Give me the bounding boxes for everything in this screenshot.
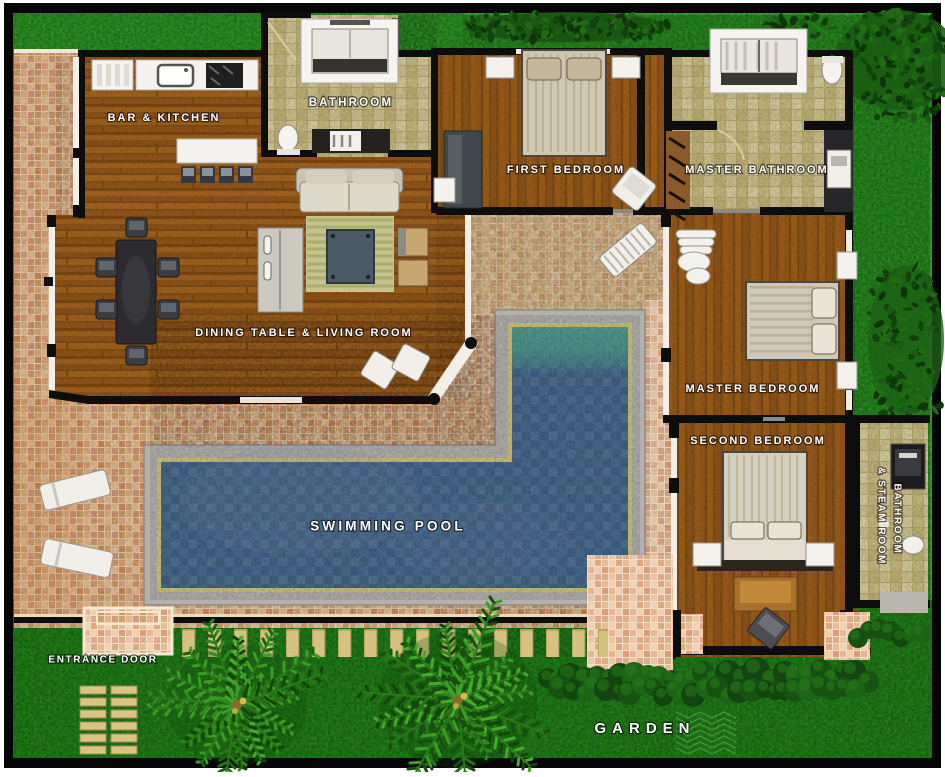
svg-text:BAR & KITCHEN: BAR & KITCHEN bbox=[108, 112, 221, 124]
svg-text:DINING TABLE & LIVING ROOM: DINING TABLE & LIVING ROOM bbox=[195, 327, 412, 339]
svg-text:SECOND BEDROOM: SECOND BEDROOM bbox=[690, 435, 826, 447]
svg-text:BATHROOM: BATHROOM bbox=[891, 484, 902, 555]
svg-text:ENTRANCE DOOR: ENTRANCE DOOR bbox=[48, 655, 157, 666]
svg-text:& STEAM ROOM: & STEAM ROOM bbox=[875, 467, 886, 565]
svg-text:BATHROOM: BATHROOM bbox=[309, 97, 393, 109]
svg-text:MASTER BATHROOM: MASTER BATHROOM bbox=[685, 164, 828, 176]
svg-text:FIRST BEDROOM: FIRST BEDROOM bbox=[507, 164, 625, 176]
svg-text:MASTER BEDROOM: MASTER BEDROOM bbox=[686, 383, 821, 395]
svg-text:SWIMMING POOL: SWIMMING POOL bbox=[310, 519, 466, 534]
svg-text:GARDEN: GARDEN bbox=[594, 720, 695, 737]
